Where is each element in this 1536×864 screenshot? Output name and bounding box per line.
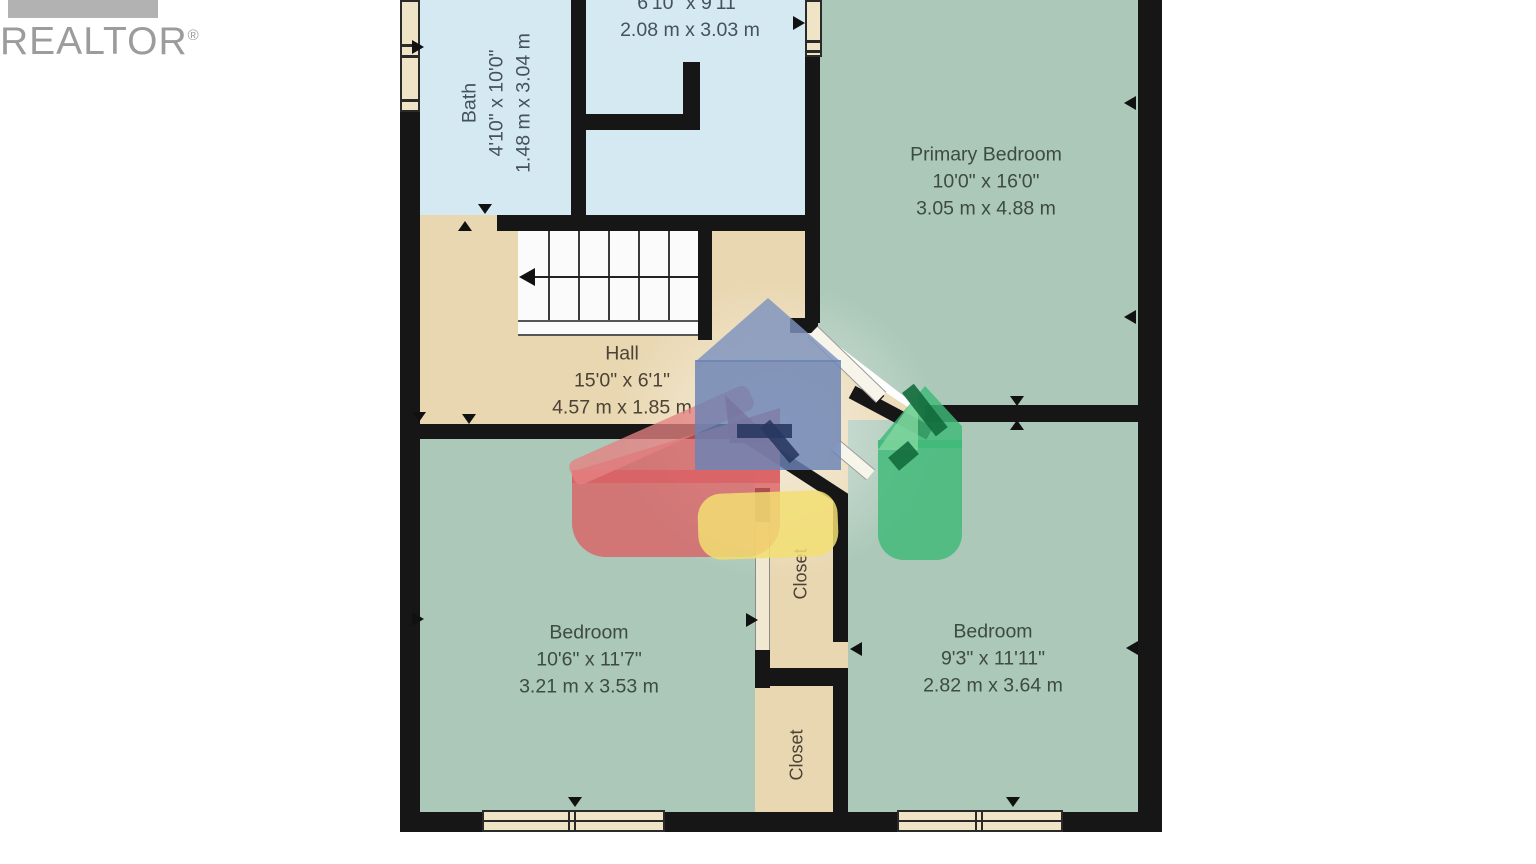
room-label-closet-lower: Closet [784,729,811,780]
window-primary-top [805,0,822,57]
stair-landing-line [518,320,700,322]
marker-arrow-icon [1124,310,1136,324]
stair-tread-line [668,226,670,320]
room-dims-metric: 3.21 m x 3.53 m [519,674,659,701]
room-dims-metric: 2.08 m x 3.03 m [620,17,760,44]
realtor-logo-block [8,0,158,18]
marker-arrow-icon [462,414,476,424]
room-dims-imperial: 10'6" x 11'7" [519,647,659,674]
marker-arrow-icon [412,612,424,626]
marker-arrow-icon [793,16,805,30]
room-dims-imperial: 4'10" x 10'0" [484,33,511,173]
marker-arrow-icon [412,412,426,422]
stair-direction-arrow-icon [519,268,535,286]
room-dims-imperial: 9'3" x 11'11" [923,646,1063,673]
door-swing-arrow-icon [458,221,472,231]
room-name: Bedroom [519,620,659,647]
room-label-primary-bedroom: Primary Bedroom 10'0" x 16'0" 3.05 m x 4… [910,142,1062,223]
room-dims-imperial: 6'10" x 9'11" [620,0,760,17]
room-label-bedroom-right: Bedroom 9'3" x 11'11" 2.82 m x 3.64 m [923,619,1063,700]
window-bar [805,50,822,53]
door-swing-arrow-icon [478,204,492,214]
watermark-yellow-shape-icon [697,490,839,561]
window-bar [899,820,1061,822]
window-bar [400,99,420,102]
stair-rail-line [532,276,700,278]
room-dims-imperial: 15'0" x 6'1" [552,368,692,395]
stair-tread-line [638,226,640,320]
realtor-logo-text: REALTOR® [0,20,260,64]
door-marker-icon [1010,396,1024,406]
marker-arrow-icon [568,797,582,807]
closet-door-arrow-icon [746,613,758,627]
floor-plan: Bath 4'10" x 10'0" 1.48 m x 3.04 m 6'10"… [400,0,1162,864]
room-label-top-middle: 6'10" x 9'11" 2.08 m x 3.03 m [620,0,760,44]
room-name: Bedroom [923,619,1063,646]
window-bar [484,820,663,822]
room-label-bedroom-left: Bedroom 10'6" x 11'7" 3.21 m x 3.53 m [519,620,659,701]
stair-tread-line [578,226,580,320]
realtor-wordmark: REALTOR [0,20,188,63]
marker-arrow-icon [1124,96,1136,110]
wall-bedroom-right-left-b [833,670,848,820]
window-bedroom-right [897,810,1063,832]
registered-trademark-icon: ® [188,27,200,44]
room-dims-metric: 3.05 m x 4.88 m [910,196,1062,223]
door-marker-icon [1010,420,1024,430]
staircase [518,226,700,336]
watermark-blue-house-roof-icon [695,298,841,362]
marker-arrow-icon [1126,641,1138,655]
room-name: Bath [457,33,484,173]
room-dims-metric: 1.48 m x 3.04 m [511,33,538,173]
marker-arrow-icon [1006,797,1020,807]
floor-plan-page: REALTOR® [0,0,1536,864]
closet-door-arrow-icon [850,642,862,656]
wall-between-closets [755,668,848,686]
room-name: Primary Bedroom [910,142,1062,169]
room-name: Hall [552,341,692,368]
watermark-blue-house-body-icon [695,360,841,470]
wall-primary-bedroom2-divider [925,405,1138,422]
wall-hall-top [497,215,818,231]
window-bar [400,55,420,58]
window-bedroom-left [482,810,665,832]
room-dims-metric: 2.82 m x 3.64 m [923,673,1063,700]
window-bar [805,40,822,43]
room-dims-imperial: 10'0" x 16'0" [910,169,1062,196]
wall-exterior-right [1138,0,1162,832]
wall-bath-divider [571,0,586,231]
stair-tread-line [608,226,610,320]
marker-arrow-icon [412,40,424,54]
wall-inner-l-horizontal [585,114,700,130]
stair-tread-line [548,226,550,320]
room-label-bath: Bath 4'10" x 10'0" 1.48 m x 3.04 m [457,33,538,173]
room-label-hall: Hall 15'0" x 6'1" 4.57 m x 1.85 m [552,341,692,422]
